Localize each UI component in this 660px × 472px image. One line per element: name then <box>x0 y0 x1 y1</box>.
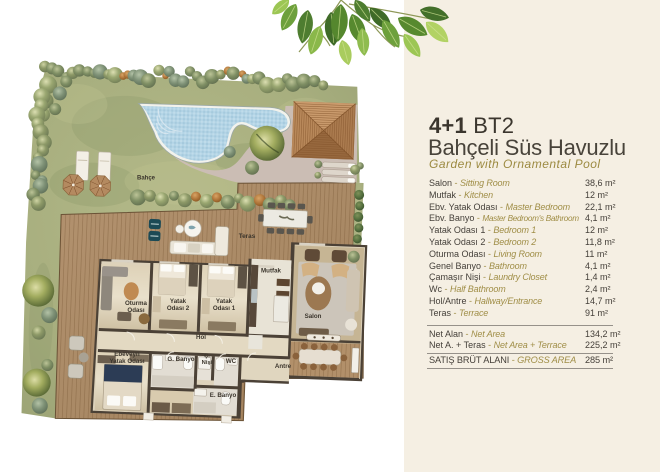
svg-text:Antre: Antre <box>275 363 292 370</box>
svg-text:Yatak Odası: Yatak Odası <box>109 358 144 365</box>
svg-text:Bahçe: Bahçe <box>137 176 156 182</box>
svg-text:Mutfak: Mutfak <box>261 268 281 275</box>
svg-text:Odası 2: Odası 2 <box>167 305 190 312</box>
svg-text:Teras: Teras <box>239 233 256 240</box>
svg-text:WC: WC <box>226 358 237 365</box>
svg-text:E. Banyo: E. Banyo <box>210 392 237 399</box>
svg-text:Yatak: Yatak <box>170 298 187 305</box>
svg-text:Ebeveyn: Ebeveyn <box>114 351 140 358</box>
svg-text:Oturma: Oturma <box>125 300 148 307</box>
svg-text:Yatak: Yatak <box>216 298 233 305</box>
svg-text:Ç.: Ç. <box>204 354 210 360</box>
svg-text:Odası 1: Odası 1 <box>213 305 236 312</box>
svg-text:Nişi: Nişi <box>202 360 213 366</box>
svg-text:Odası: Odası <box>127 307 144 314</box>
svg-text:Hol: Hol <box>196 334 206 341</box>
svg-text:Salon: Salon <box>305 313 322 320</box>
svg-text:G. Banyo: G. Banyo <box>167 356 194 363</box>
